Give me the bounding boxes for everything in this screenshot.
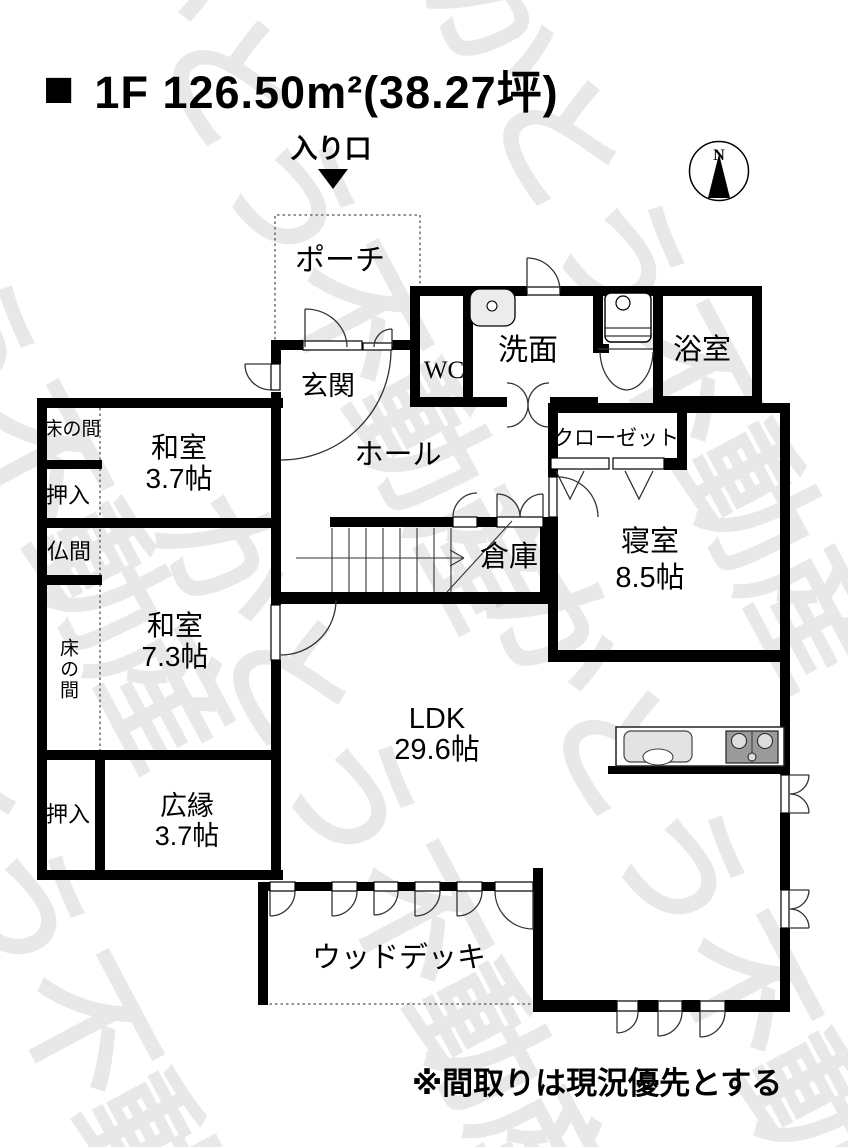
storage-door-swing <box>453 493 477 517</box>
deck-door-swing <box>457 891 482 916</box>
closet-bifold-mark <box>556 471 584 499</box>
washroom-double-swing-door <box>507 383 549 427</box>
room-label-oshiire-bottom: 押入 <box>46 803 90 826</box>
floor-area-title: 1F 126.50m²(38.27坪) <box>94 56 558 121</box>
room-label-hall: ホール <box>354 440 441 470</box>
plan-note: ※間取りは現況優先とする <box>412 1058 782 1103</box>
room-label-bedroom: 寝室 <box>621 527 679 557</box>
room-label-closet: クローゼット <box>553 428 679 450</box>
room-label-ldk: LDK <box>409 704 465 734</box>
storage-double-door-panel <box>497 517 543 527</box>
entrance-door-panel-small <box>363 343 392 350</box>
room-label-washroom: 洗面 <box>498 335 558 367</box>
ldk-south-door-swing <box>658 1012 682 1036</box>
room-label-porch: ポーチ <box>295 245 385 277</box>
ldk-south-door-panel <box>700 1001 725 1011</box>
room-size-hiroen: 3.7帖 <box>155 822 220 850</box>
stairs-direction-arrow <box>296 550 464 566</box>
kitchen-sink-icon <box>624 731 692 765</box>
room-label-butsuma: 仏間 <box>47 540 91 563</box>
room-label-storage: 倉庫 <box>480 542 538 572</box>
room-label-washitsu-small: 和室 <box>151 433 207 462</box>
closet-door-panel <box>551 458 609 469</box>
ldk-east-door-panel <box>781 890 789 928</box>
title-square-marker: ■ <box>43 66 74 112</box>
ldk-south-door-panel <box>658 1001 682 1011</box>
room-label-tokonoma-side: 床の間 <box>57 638 77 701</box>
ldk-south-door-swing <box>700 1012 725 1037</box>
ldk-east-door-swing <box>790 890 809 928</box>
floor-plan-drawing: N <box>0 0 848 1147</box>
stove-icon <box>726 731 778 763</box>
room-label-oshiire-top: 押入 <box>46 484 90 507</box>
compass-icon: N <box>690 142 749 201</box>
room-size-washitsu-small: 3.7帖 <box>146 464 213 493</box>
deck-door-panel <box>457 882 482 891</box>
kitchen-counter <box>616 727 784 766</box>
deck-door-panel <box>374 882 398 891</box>
washbasin-icon <box>470 289 515 326</box>
deck-door-swing <box>270 891 295 916</box>
deck-door-panel <box>270 882 295 891</box>
deck-door-panel <box>332 882 357 891</box>
deck-large-door-swing <box>495 891 533 929</box>
genkan-side-door-panel <box>271 364 280 390</box>
genkan-side-door-swing <box>245 364 271 390</box>
deck-door-swing <box>374 891 398 915</box>
ldk-east-door-swing <box>790 775 809 813</box>
deck-door-swing <box>415 891 440 916</box>
washitsu-door-panel <box>271 605 280 660</box>
room-label-bathroom: 浴室 <box>673 335 731 365</box>
storage-double-door-swing <box>497 494 543 517</box>
back-door-swing <box>527 258 560 291</box>
bedroom-door-panel <box>549 477 557 517</box>
room-label-wc: WC <box>424 358 464 384</box>
bath-folding-door <box>598 349 653 390</box>
room-label-genkan: 玄関 <box>301 372 355 400</box>
compass-north-label: N <box>713 147 725 164</box>
ldk-south-door-swing <box>617 1012 638 1033</box>
back-door-panel <box>527 287 560 295</box>
deck-door-panel <box>415 882 440 891</box>
room-label-washitsu-large: 和室 <box>147 611 203 640</box>
closet-door-panel <box>613 458 664 469</box>
room-size-washitsu-large: 7.3帖 <box>142 642 209 671</box>
entrance-direction-label: 入り口 <box>291 135 372 163</box>
porch-outline <box>275 215 420 345</box>
storage-door-panel <box>453 517 477 527</box>
closet-bifold-mark <box>625 471 653 499</box>
ldk-south-door-panel <box>617 1001 638 1011</box>
washitsu-door-swing <box>281 600 336 655</box>
room-label-wood-deck: ウッドデッキ <box>312 943 486 973</box>
deck-door-panel <box>495 882 533 891</box>
page-title: ■ 1F 126.50m²(38.27坪) <box>43 56 559 121</box>
room-label-hiroen: 広縁 <box>160 792 214 820</box>
bathtub-icon <box>605 293 651 342</box>
ldk-east-door-panel <box>781 775 789 813</box>
room-label-tokonoma-top: 床の間 <box>43 420 100 440</box>
room-size-bedroom: 8.5帖 <box>615 563 684 593</box>
entrance-arrow-icon <box>318 169 348 189</box>
entrance-door-panel <box>303 341 362 350</box>
floor-plan-page: かとう不動産 かとう不動産 かとう不動産 かとう不動産 かとう不動産 かとう不動… <box>0 0 848 1147</box>
deck-door-swing <box>332 891 357 916</box>
room-size-ldk: 29.6帖 <box>394 735 479 765</box>
